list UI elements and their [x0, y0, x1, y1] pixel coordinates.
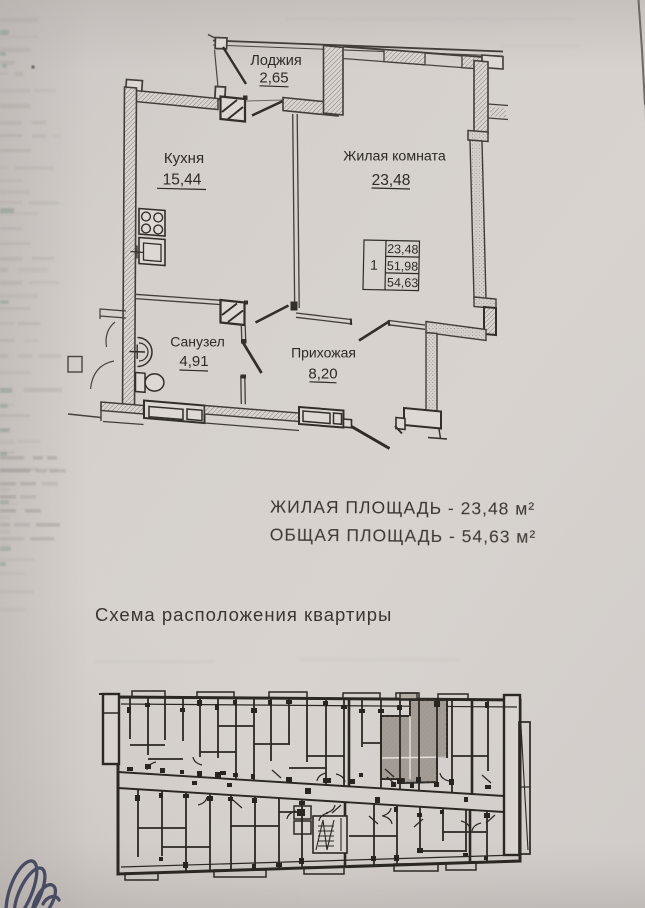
svg-text:54,63: 54,63 [387, 275, 419, 290]
svg-text:8,20: 8,20 [308, 366, 337, 383]
svg-text:23,48: 23,48 [372, 172, 411, 189]
svg-text:ОБЩАЯ ПЛОЩАДЬ - 54,63 м²: ОБЩАЯ ПЛОЩАДЬ - 54,63 м² [270, 524, 537, 546]
svg-text:ЖИЛАЯ ПЛОЩАДЬ - 23,48 м²: ЖИЛАЯ ПЛОЩАДЬ - 23,48 м² [270, 497, 535, 519]
svg-text:23,48: 23,48 [387, 242, 419, 257]
svg-text:Санузел: Санузел [170, 334, 225, 350]
svg-text:51,98: 51,98 [387, 259, 419, 274]
svg-text:2,65: 2,65 [259, 70, 288, 87]
svg-text:Кухня: Кухня [164, 150, 204, 167]
svg-text:Прихожая: Прихожая [291, 345, 356, 361]
svg-text:Схема расположения квартиры: Схема расположения квартиры [95, 604, 392, 625]
svg-text:Лоджия: Лоджия [250, 53, 301, 69]
svg-text:4,91: 4,91 [179, 353, 208, 370]
svg-text:15,44: 15,44 [163, 172, 202, 189]
svg-text:Жилая комната: Жилая комната [343, 149, 446, 165]
svg-text:1: 1 [370, 257, 378, 273]
